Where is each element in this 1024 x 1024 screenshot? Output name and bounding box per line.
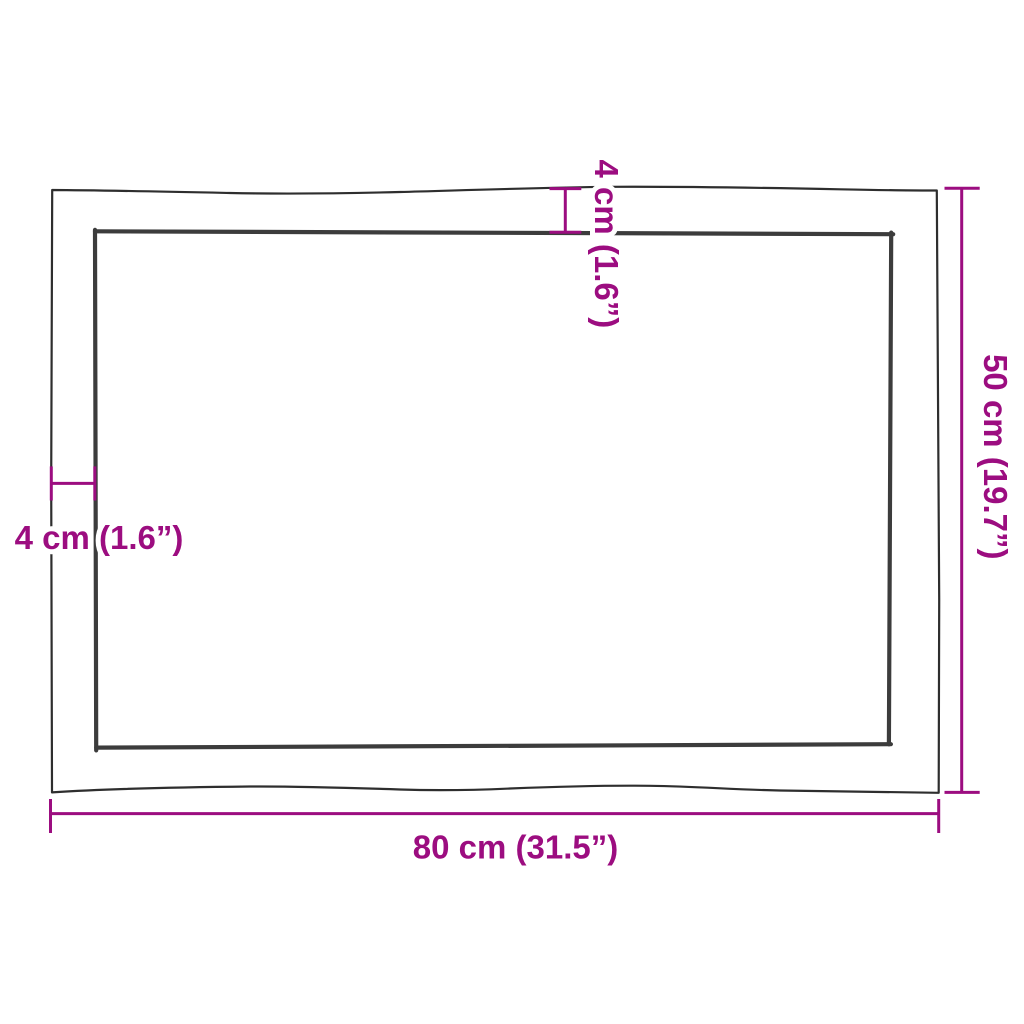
svg-text:50 cm (19.7”): 50 cm (19.7”) (977, 354, 1014, 559)
svg-text:4 cm (1.6”): 4 cm (1.6”) (15, 519, 184, 556)
svg-text:4 cm (1.6”): 4 cm (1.6”) (588, 160, 625, 329)
svg-text:80 cm (31.5”): 80 cm (31.5”) (413, 829, 618, 866)
